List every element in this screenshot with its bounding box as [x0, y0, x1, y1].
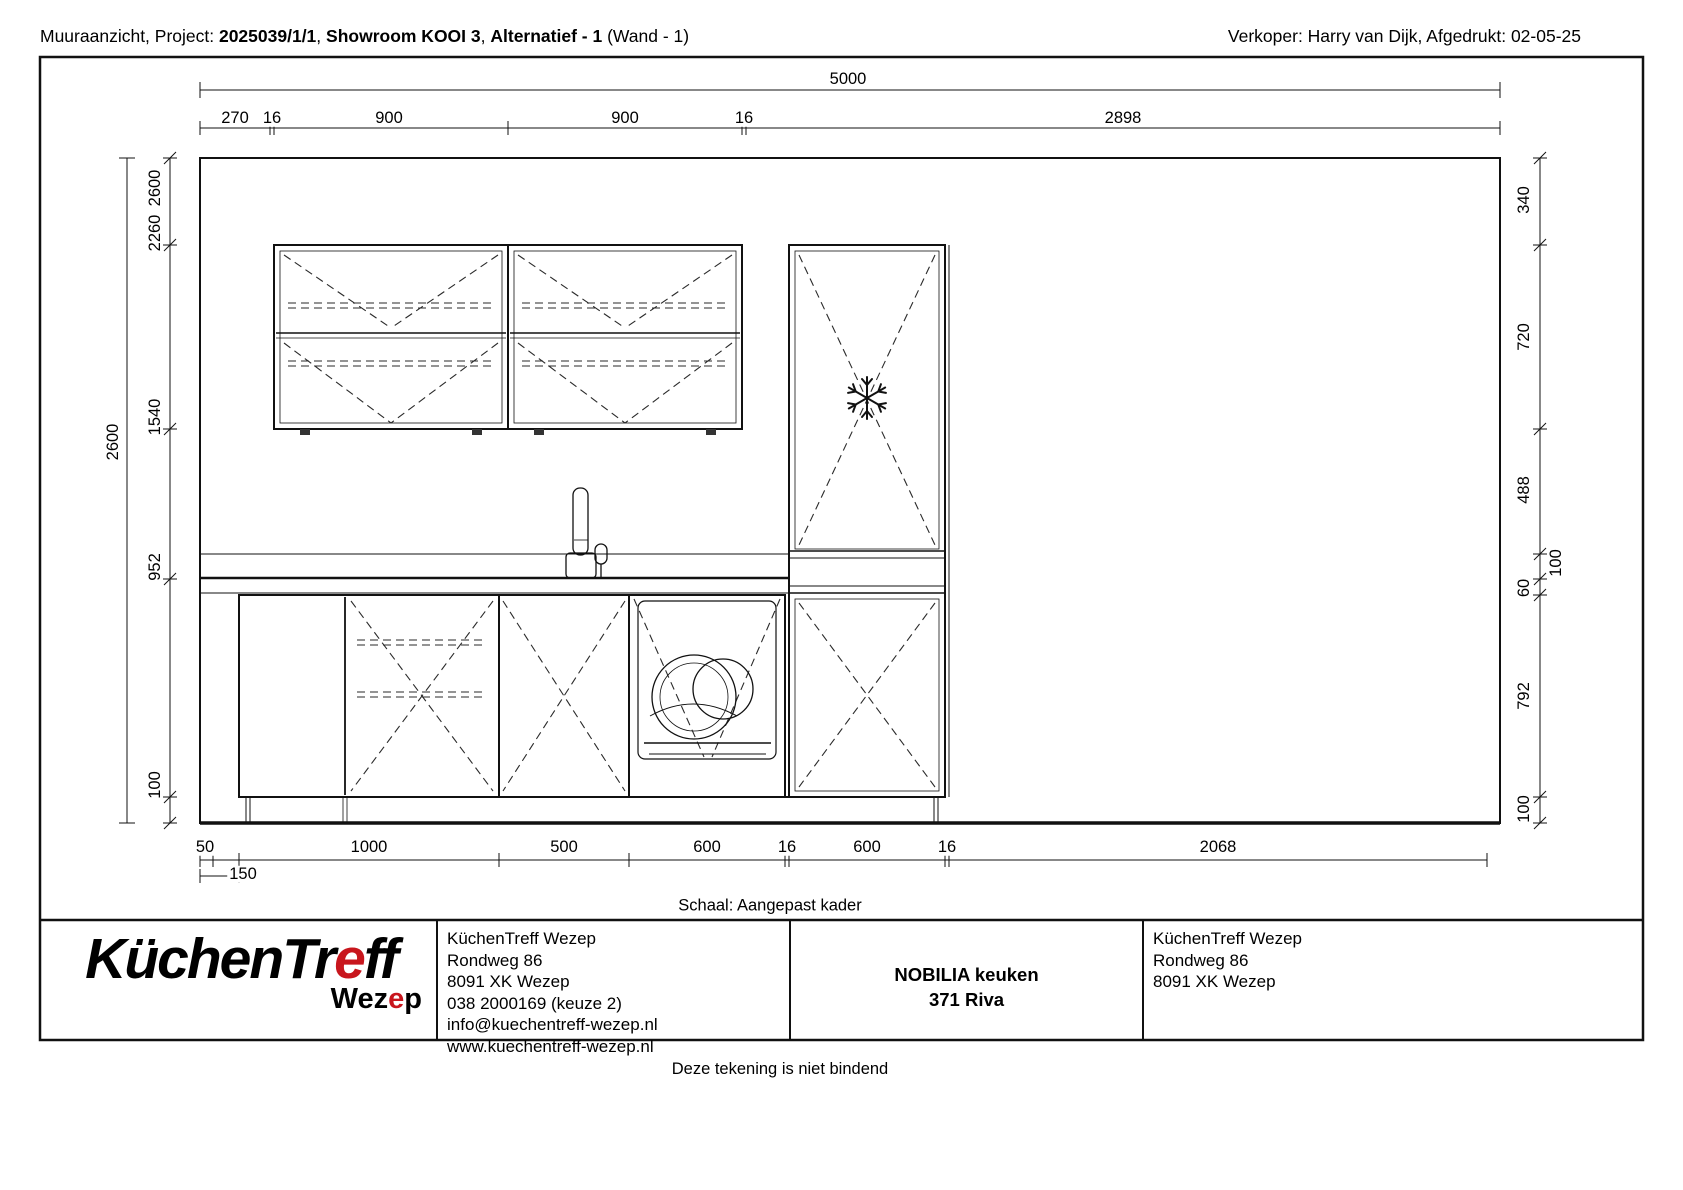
page-border: [40, 57, 1643, 1040]
dim-label-bottom: 50: [194, 839, 216, 856]
dishwasher: [629, 595, 785, 797]
dim-label-top: 16: [261, 110, 283, 127]
dim-label-top: 2898: [1103, 110, 1144, 127]
wall-cabinet-2: [508, 245, 742, 435]
dim-label-top: 270: [219, 110, 251, 127]
dim-label-left: 1540: [147, 399, 164, 436]
dim-label-right: 60: [1516, 579, 1533, 597]
dim-label-top: 900: [373, 110, 405, 127]
dim-label-right: 792: [1516, 682, 1533, 710]
dim-right-chain: [1533, 152, 1547, 829]
dealer-street: Rondweg 86: [1153, 950, 1302, 972]
wall-cabinet-1: [274, 245, 508, 435]
dealer-city: 8091 XK Wezep: [447, 971, 658, 993]
dim-left-chain: [163, 152, 177, 829]
scale-note: Schaal: Aangepast kader: [678, 897, 861, 916]
dim-label-bottom: 16: [776, 839, 798, 856]
dim-label-top: 900: [609, 110, 641, 127]
dim-label-bottom: 1000: [349, 839, 390, 856]
dim-label-right: 100: [1516, 795, 1533, 823]
faucet: [566, 488, 607, 578]
dealer-name: KüchenTreff Wezep: [447, 928, 658, 950]
kuechentreff-logo-sub: Wezep: [150, 983, 422, 1016]
dim-label-bottom: 600: [691, 839, 723, 856]
dealer-street: Rondweg 86: [447, 950, 658, 972]
dim-label-bottom: 600: [851, 839, 883, 856]
dim-label-right: 720: [1516, 323, 1533, 351]
product-brand: NOBILIA keuken: [790, 962, 1143, 987]
product-block: NOBILIA keuken 371 Riva: [790, 962, 1143, 1012]
dim-label-total-width: 5000: [828, 71, 869, 88]
dim-label-right: 488: [1516, 476, 1533, 504]
dim-bottom-row1: [200, 853, 1487, 867]
dealer-address-block-short: KüchenTreff Wezep Rondweg 86 8091 XK Wez…: [1153, 928, 1302, 993]
dim-label-left: 2600: [147, 170, 164, 207]
snowflake-icon: [846, 377, 887, 419]
tall-fridge-unit: [785, 245, 949, 797]
dealer-phone: 038 2000169 (keuze 2): [447, 993, 658, 1015]
dim-left-total: [119, 158, 135, 823]
dim-label-bottom: 2068: [1198, 839, 1239, 856]
dealer-website: www.kuechentreff-wezep.nl: [447, 1036, 658, 1058]
dim-label-bottom: 16: [936, 839, 958, 856]
disclaimer-note: Deze tekening is niet bindend: [500, 1060, 1060, 1079]
base-cabinet-sink: [239, 595, 499, 797]
dim-label-left: 2260: [147, 215, 164, 252]
plinth: [239, 797, 945, 823]
dim-label-right: 100: [1548, 549, 1565, 577]
dim-label-left: 952: [147, 553, 164, 581]
drawing-page: Muuraanzicht, Project: 2025039/1/1, Show…: [0, 0, 1683, 1190]
dealer-city: 8091 XK Wezep: [1153, 971, 1302, 993]
dim-label-total-height: 2600: [105, 424, 122, 461]
product-model: 371 Riva: [790, 987, 1143, 1012]
room-outline: [200, 158, 1500, 823]
dim-label-bottom-offset: 150: [227, 866, 259, 883]
dim-label-left: 100: [147, 771, 164, 799]
dim-label-right: 340: [1516, 186, 1533, 214]
dealer-address-block: KüchenTreff Wezep Rondweg 86 8091 XK Wez…: [447, 928, 658, 1057]
base-cabinet-500: [499, 595, 629, 797]
worktop: [200, 554, 789, 593]
dealer-name: KüchenTreff Wezep: [1153, 928, 1302, 950]
dim-label-bottom: 500: [548, 839, 580, 856]
dim-label-top: 16: [733, 110, 755, 127]
dealer-email: info@kuechentreff-wezep.nl: [447, 1014, 658, 1036]
